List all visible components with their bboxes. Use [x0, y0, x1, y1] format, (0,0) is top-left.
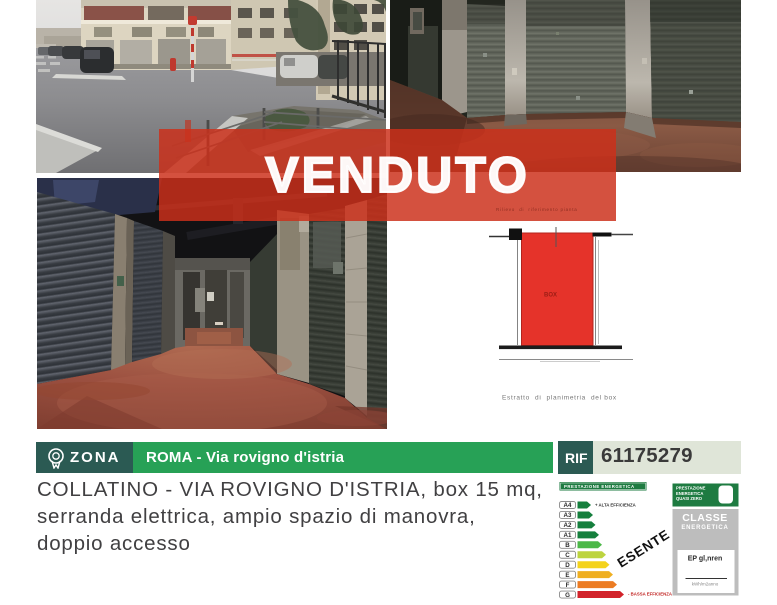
svg-text:+ ALTA EFFICIENZA: + ALTA EFFICIENZA [595, 503, 636, 508]
svg-text:PRESTAZIONE: PRESTAZIONE [676, 486, 706, 491]
svg-text:D: D [565, 562, 570, 569]
svg-text:- BASSA EFFICIENZA: - BASSA EFFICIENZA [628, 592, 672, 597]
svg-text:CLASSE: CLASSE [682, 512, 728, 524]
svg-text:QUASI ZERO: QUASI ZERO [676, 496, 703, 501]
svg-text:E: E [565, 572, 569, 579]
svg-text:kWh/m2anno: kWh/m2anno [692, 582, 719, 587]
svg-text:ESENTE: ESENTE [615, 527, 673, 571]
svg-text:F: F [566, 582, 570, 589]
svg-text:EP gl,nren: EP gl,nren [688, 556, 723, 563]
svg-text:ENERGETICA: ENERGETICA [681, 525, 728, 531]
svg-text:BOX: BOX [544, 293, 557, 299]
svg-text:ENERGETICA: ENERGETICA [676, 491, 703, 496]
svg-text:Estratto di planimetria del: Estratto di planimetria del box [502, 395, 617, 402]
svg-text:G: G [565, 592, 570, 599]
